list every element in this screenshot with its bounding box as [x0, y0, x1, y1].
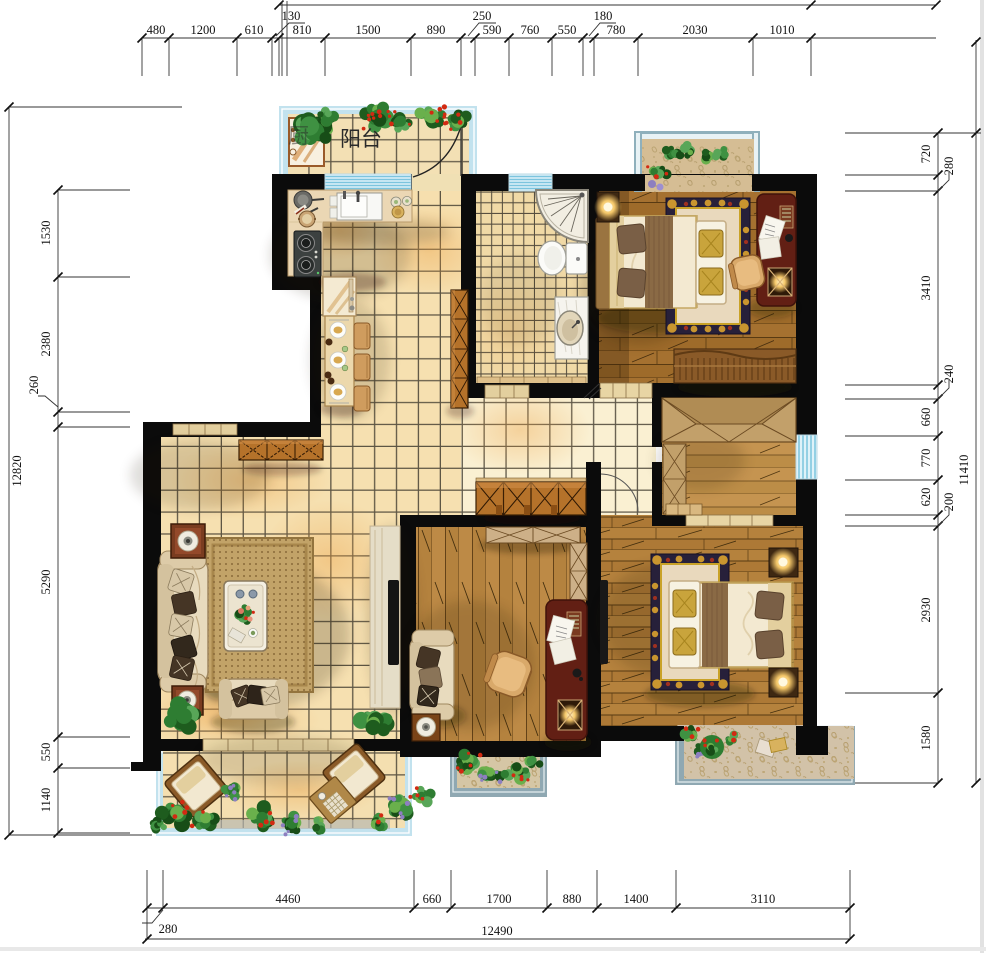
- svg-text:550: 550: [558, 23, 577, 37]
- svg-text:3110: 3110: [751, 892, 776, 906]
- svg-text:12820: 12820: [10, 455, 24, 486]
- svg-text:1140: 1140: [39, 788, 53, 813]
- svg-text:4460: 4460: [276, 892, 301, 906]
- svg-text:200: 200: [942, 493, 956, 512]
- svg-text:1580: 1580: [919, 726, 933, 751]
- svg-text:660: 660: [423, 892, 442, 906]
- svg-text:250: 250: [473, 9, 492, 23]
- svg-text:1010: 1010: [770, 23, 795, 37]
- svg-text:260: 260: [27, 376, 41, 395]
- svg-text:890: 890: [427, 23, 446, 37]
- svg-text:2930: 2930: [919, 598, 933, 623]
- svg-text:590: 590: [483, 23, 502, 37]
- svg-text:3410: 3410: [919, 276, 933, 301]
- svg-text:厨: 厨: [288, 124, 309, 148]
- svg-text:770: 770: [919, 449, 933, 468]
- svg-text:240: 240: [942, 365, 956, 384]
- svg-text:130: 130: [282, 9, 301, 23]
- svg-text:480: 480: [147, 23, 166, 37]
- svg-text:620: 620: [919, 488, 933, 507]
- svg-text:760: 760: [521, 23, 540, 37]
- svg-text:1500: 1500: [356, 23, 381, 37]
- svg-text:610: 610: [245, 23, 264, 37]
- svg-text:180: 180: [594, 9, 613, 23]
- svg-text:280: 280: [942, 157, 956, 176]
- svg-text:660: 660: [919, 408, 933, 427]
- svg-text:12490: 12490: [481, 924, 512, 938]
- svg-text:1400: 1400: [624, 892, 649, 906]
- svg-text:280: 280: [159, 922, 178, 936]
- svg-text:550: 550: [39, 743, 53, 762]
- svg-text:720: 720: [919, 145, 933, 164]
- svg-text:880: 880: [563, 892, 582, 906]
- svg-text:5290: 5290: [39, 570, 53, 595]
- svg-text:阳台: 阳台: [340, 127, 382, 151]
- svg-text:2380: 2380: [39, 332, 53, 357]
- svg-text:780: 780: [607, 23, 626, 37]
- svg-text:1200: 1200: [191, 23, 216, 37]
- svg-text:1530: 1530: [39, 221, 53, 246]
- svg-text:2030: 2030: [683, 23, 708, 37]
- svg-text:1700: 1700: [487, 892, 512, 906]
- svg-text:11410: 11410: [957, 455, 971, 486]
- svg-text:810: 810: [293, 23, 312, 37]
